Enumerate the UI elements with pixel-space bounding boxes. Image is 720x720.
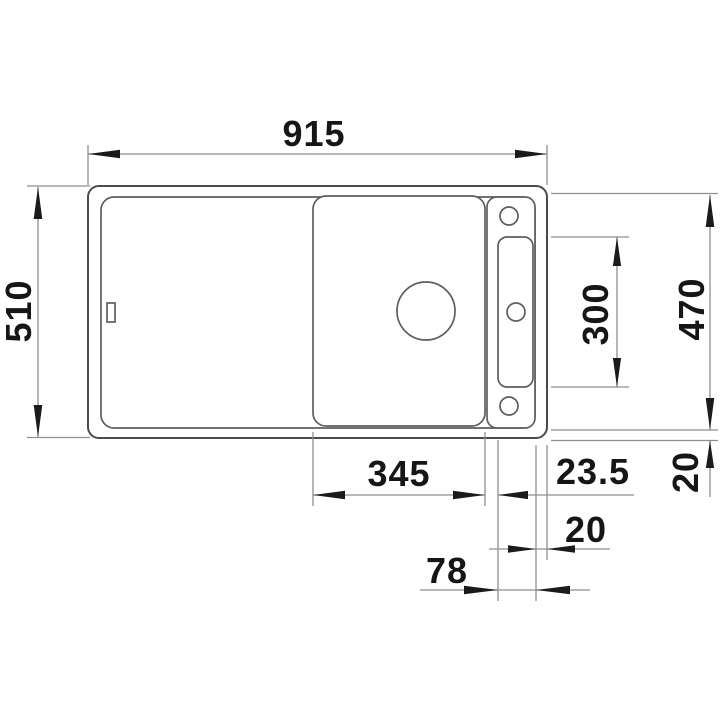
arrow-20r-bottom (706, 441, 714, 469)
arrow-915-right (515, 150, 547, 159)
tap-hole-middle (507, 303, 525, 321)
arrow-235-right (498, 491, 528, 499)
dim-label-rim-bottom: 20 (565, 509, 607, 550)
dim-label-slot-length: 300 (575, 282, 616, 345)
dim-label-rim-right: 20 (665, 451, 706, 493)
arrow-300-top (613, 237, 621, 266)
arrow-78-right (536, 586, 570, 595)
arrow-470-top (706, 195, 715, 227)
dim-label-rail-width: 78 (426, 550, 468, 591)
arrow-510-top (34, 187, 43, 219)
dim-label-board-width: 345 (367, 453, 430, 494)
arrow-345-right (453, 491, 485, 499)
arrow-300-bottom (613, 358, 621, 387)
technical-drawing-canvas: 915 510 470 20 300 345 (0, 0, 720, 720)
dim-label-board-slot-gap: 23.5 (556, 451, 630, 492)
board-hand-hole (397, 282, 455, 340)
arrow-915-left (88, 150, 120, 159)
arrow-470-bottom (706, 398, 715, 430)
dim-label-inner-depth: 470 (671, 277, 712, 340)
tap-hole-bottom (500, 397, 518, 415)
arrow-78-left (464, 586, 498, 595)
tap-hole-top (500, 207, 518, 225)
dim-label-total-depth: 510 (0, 279, 39, 342)
arrow-345-left (313, 491, 345, 499)
dim-label-total-width: 915 (282, 113, 345, 154)
sink-dimension-drawing: 915 510 470 20 300 345 (0, 0, 720, 720)
arrow-510-bottom (34, 405, 43, 437)
arrow-20b-left (508, 545, 536, 553)
